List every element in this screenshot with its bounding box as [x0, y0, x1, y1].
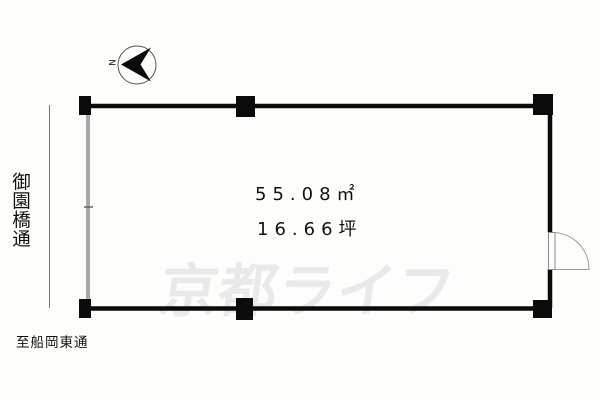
door-swing-arc: [553, 233, 590, 270]
pillar-bottom-left: [79, 299, 91, 318]
pillar-bottom-middle: [236, 298, 253, 320]
compass-north-label: N: [106, 59, 115, 66]
pillar-top-left: [79, 96, 91, 115]
floorplan-canvas: 京都ライフ N 御園橋通 至船岡東通 55.08㎡ 16.66坪: [0, 0, 600, 400]
street-name-left: 御園橋通: [10, 172, 29, 248]
area-square-meters-label: 55.08㎡: [255, 186, 361, 204]
pillar-top-middle: [236, 96, 255, 117]
compass-north-arrow-icon: [121, 48, 151, 82]
door-leaf: [549, 233, 556, 270]
pillar-top-right: [533, 94, 553, 115]
pillar-bottom-right: [533, 300, 552, 318]
area-tsubo-label: 16.66坪: [257, 221, 363, 239]
street-name-bottom: 至船岡東通: [16, 337, 89, 351]
